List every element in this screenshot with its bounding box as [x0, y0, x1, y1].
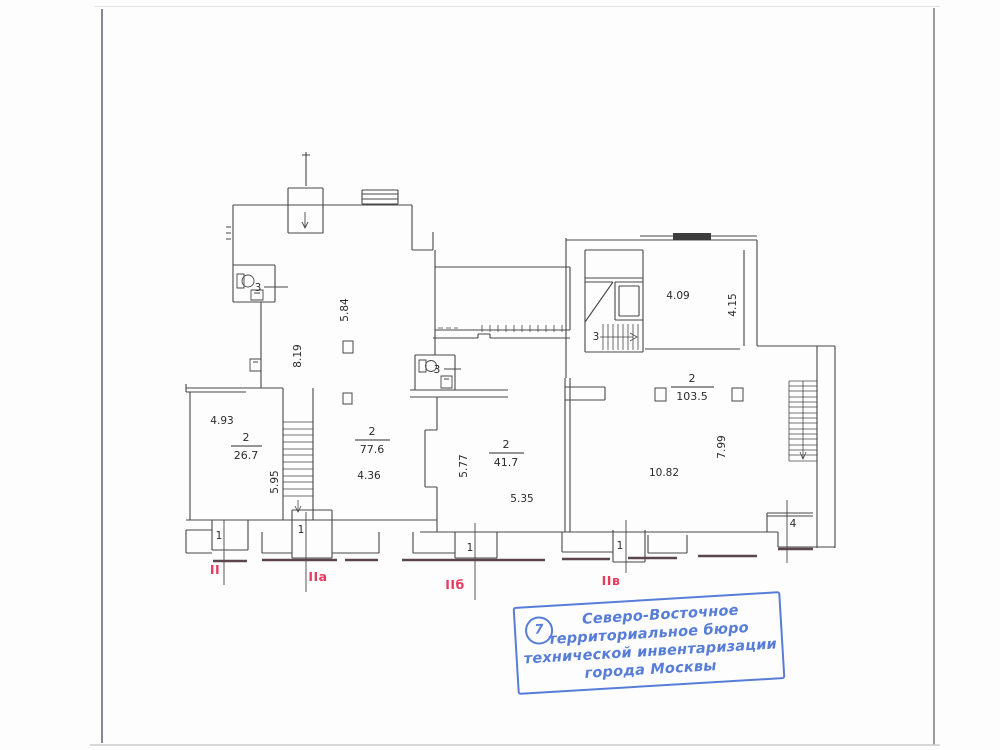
fixtures — [224, 212, 787, 600]
room-number: 2 — [243, 431, 250, 444]
room-label-41-7: 2 41.7 — [489, 438, 524, 469]
section-label-IIv: IIв — [602, 573, 621, 588]
room-area: 77.6 — [360, 443, 385, 456]
section-label-IIa: IIа — [308, 569, 327, 584]
unit-1-vestibule: 1 — [216, 530, 223, 542]
dim-10-82: 10.82 — [649, 467, 679, 479]
dim-8-19: 8.19 — [292, 344, 304, 367]
room-area: 41.7 — [494, 456, 519, 469]
sidewalk-lines — [213, 549, 813, 561]
courtyard-ticks — [438, 325, 562, 332]
room-area: 26.7 — [234, 449, 259, 462]
dim-4-93: 4.93 — [210, 415, 233, 427]
bti-stamp: 7 Северо-Восточное территориальное бюро … — [513, 591, 786, 695]
room-area: 103.5 — [676, 390, 708, 403]
room-label-77-6: 2 77.6 — [355, 425, 390, 456]
unit-1-vestibule: 1 — [617, 540, 624, 552]
room-number: 2 — [503, 438, 510, 451]
party-wall-fill — [673, 233, 711, 240]
unit-4-room: 4 — [790, 518, 797, 530]
dim-4-09: 4.09 — [666, 290, 689, 302]
unit-1-vestibule: 1 — [298, 524, 305, 536]
stairs-top-right-treads — [600, 324, 638, 350]
unit-3-toilet-mid: 3 — [434, 364, 441, 376]
room-label-26-7: 2 26.7 — [231, 431, 262, 462]
room-label-103-5: 2 103.5 — [671, 372, 714, 403]
stairs-left-treads — [283, 422, 313, 512]
page-border-left — [101, 9, 103, 743]
section-label-IIb: IIб — [445, 577, 465, 592]
unit-1-vestibule: 1 — [467, 542, 474, 554]
scanned-page: 2 26.7 2 77.6 2 41.7 2 103.5 4.93 5.95 8… — [0, 0, 1000, 750]
dim-7-99: 7.99 — [716, 435, 728, 458]
stairs-right-treads — [789, 381, 817, 461]
dim-5-35: 5.35 — [510, 493, 533, 505]
dim-5-84: 5.84 — [339, 298, 351, 322]
dim-4-15: 4.15 — [727, 293, 739, 316]
floor-plan: 2 26.7 2 77.6 2 41.7 2 103.5 4.93 5.95 8… — [0, 0, 1000, 750]
unit-3-toilet-left: 3 — [255, 282, 262, 294]
section-label-II: II — [210, 562, 220, 577]
room-number: 2 — [689, 372, 696, 385]
scan-edge-bottom — [90, 744, 940, 746]
dim-4-36: 4.36 — [357, 470, 381, 482]
dim-5-77: 5.77 — [458, 454, 470, 477]
page-border-right — [933, 8, 935, 745]
dim-5-95: 5.95 — [269, 470, 281, 493]
scan-edge-top — [95, 6, 940, 7]
room-number: 2 — [369, 425, 376, 438]
unit-3-stair: 3 — [593, 331, 600, 343]
